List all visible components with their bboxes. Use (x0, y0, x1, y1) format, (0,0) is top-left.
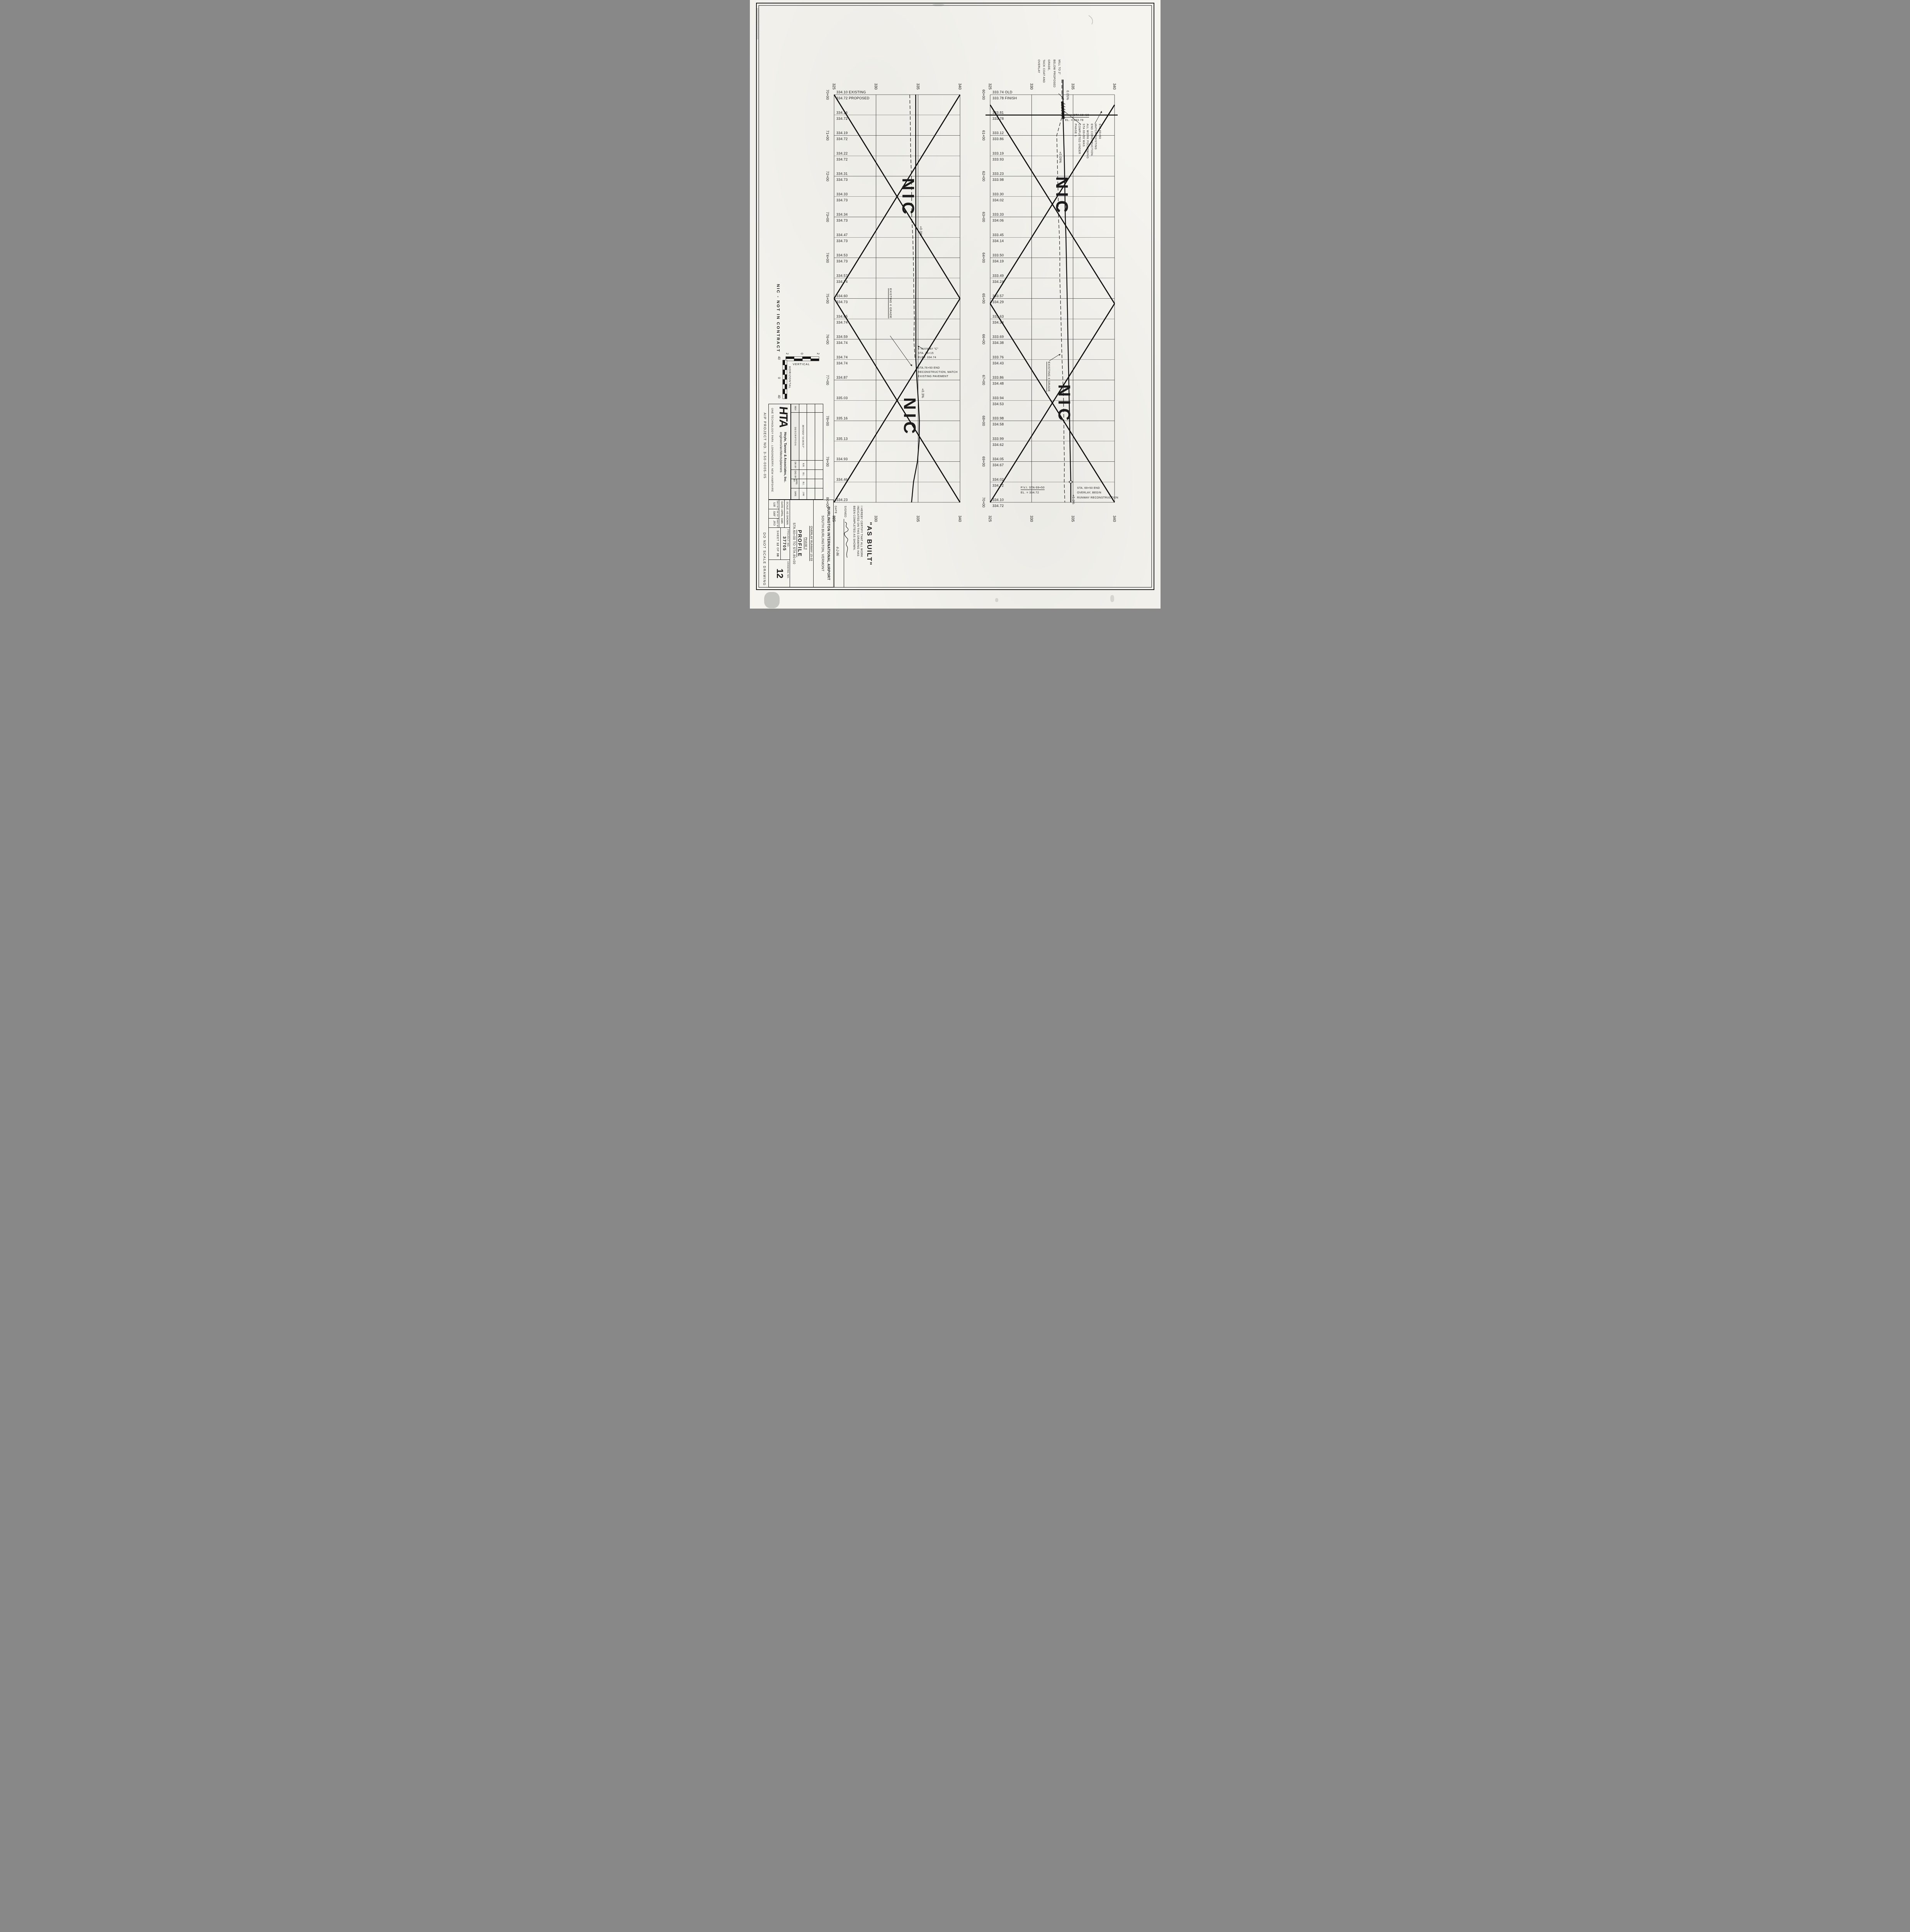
existing-elevation-value: 333.69 (992, 335, 1004, 339)
rev-header-dr-by: DR. BY (791, 461, 799, 470)
signature-date-label: DATE (834, 506, 836, 514)
station-label: 71+00 (825, 130, 829, 141)
firm-tagline: engineers/architects/planners (779, 432, 783, 473)
of-label: OF (776, 548, 779, 552)
existing-grade-leader-bottom (890, 336, 911, 366)
proposed-elevation-value: 333.93 (992, 157, 1004, 161)
elevation-axis-label-left: 335 (915, 83, 919, 90)
slope-label-005: 0.05% (1066, 90, 1069, 100)
proposed-elevation-value: 334.38 (992, 341, 1004, 345)
existing-elevation-value: 334.22 (836, 151, 848, 155)
proposed-elevation-value: 333.98 (992, 178, 1004, 182)
rev-description: REVISED "AS BUILT" (799, 413, 807, 461)
elevation-axis-label-left: 335 (1071, 83, 1075, 90)
existing-elevation-value: 333.94 (992, 396, 1004, 400)
pvi-60-50-note: P.V.I. STA 60+50 EL. = 333.78 (1065, 113, 1089, 123)
station-label: 76+00 (825, 334, 829, 345)
existing-elevation-value: 334.05 (992, 457, 1004, 461)
proposed-elevation-value: 334.72 (836, 137, 848, 141)
program-line: OVERLAY RUNWAY 15-33 (808, 500, 813, 587)
firm-address: ONE TECHNOLOGY PARK - LONDONDERRY, NEW H… (771, 408, 773, 492)
station-label: 75+00 (825, 293, 829, 304)
elevation-axis-label-right: 340 (1112, 515, 1116, 522)
sheet-title: PROFILE (797, 500, 803, 587)
signed-row: SIGNED (843, 500, 849, 587)
station-label: 72+00 (825, 171, 829, 182)
station-label: 78+00 (825, 416, 829, 426)
existing-elevation-value: 334.02 (992, 478, 1004, 481)
rev-header-appd-by: APPD. BY (791, 479, 799, 488)
existing-elevation-value: 333.86 (992, 376, 1004, 379)
proposed-elevation-value: 334.06 (992, 219, 1004, 223)
vertical-scale-bar-cell (794, 357, 802, 359)
elevation-axis-label-right: 335 (1071, 515, 1075, 522)
vertical-scale-bar-cell (811, 359, 819, 361)
existing-grade-line (909, 95, 915, 360)
existing-elevation-value: 333.49 (992, 274, 1004, 277)
hscale-tick-left: 40 (777, 356, 781, 360)
dr-by-cell: DR. BY SMF (768, 509, 779, 519)
existing-elevation-value: 334.59 (836, 335, 848, 339)
revision-table: REVISED "AS BUILT" R.B. B.L. B.L. 2/86 R… (791, 404, 823, 500)
proposed-elevation-value: 333.86 (992, 137, 1004, 141)
existing-elevation-value: 333.99 (992, 437, 1004, 440)
drawing-no-cell: DRAWING NO. 12 (768, 560, 790, 587)
proposed-elevation-value: 334.67 (992, 463, 1004, 467)
station-label: 74+00 (825, 253, 829, 263)
rev-header-rev: REV (791, 404, 799, 413)
elevation-axis-label-left: 340 (957, 83, 962, 90)
scale-value: AS SHOWN (786, 511, 788, 525)
slope-label-00-bottom: +0.0% (919, 226, 923, 236)
station-label: 64+00 (981, 253, 986, 263)
vertical-scale-bar-cell (802, 359, 811, 361)
pvi-69-50-line2: EL. = 334.72 (1021, 491, 1039, 494)
proposed-elevation-value: 334.24 (992, 280, 1004, 284)
existing-elevation-value: 334.34 (836, 213, 848, 216)
existing-elevation-value: 334.31 (836, 172, 848, 176)
existing-elevation-value: 334.93 (836, 457, 848, 461)
end-overlay-note: STA. 69+50 END OVERLAY, BEGIN RUNWAY REC… (1077, 486, 1118, 500)
existing-elevation-value: 333.19 (992, 151, 1004, 155)
existing-elevation-value: 333.12 (992, 131, 1004, 135)
proposed-elevation-value: 334.58 (992, 422, 1004, 426)
scanned-profile-sheet: 32532533033033533534034060+00333.74 OLD3… (750, 0, 1161, 609)
rev-appd-by: B.L. (799, 479, 807, 488)
rev-header-description: DESCRIPTION (791, 413, 799, 461)
pvi-69-50-line1: P.V.I. STA 69+50 (1021, 486, 1045, 490)
vscale-tick-top: 2 (816, 353, 820, 354)
signature-script (843, 520, 849, 563)
proposed-elevation-value: 334.02 (992, 198, 1004, 202)
by-cells: DES. BY SJR DR. BY SMF CHKD. BY JPD (768, 500, 779, 527)
scale-label: SCALE: (786, 502, 788, 510)
station-label: 77+00 (825, 375, 829, 385)
aip-project-number: AIP PROJECT NO. 3-50-0005-05 (763, 413, 767, 479)
firm-name: Hoyle, Tanner & Associates, Inc. (783, 432, 787, 482)
existing-grade-label-bottom: EXISTING ¢ GRADE (888, 288, 892, 318)
vertical-scale-bar-cell (802, 357, 811, 359)
proposed-elevation-value: 334.72 (836, 117, 848, 121)
proposed-elevation-value: 334.62 (992, 443, 1004, 447)
revision-header-row: REV DESCRIPTION DR. BY CKD. BY APPD. BY … (791, 404, 799, 499)
proposed-elevation-value: 334.72 (992, 504, 1004, 508)
existing-elevation-value: 334.47 (836, 233, 848, 237)
existing-elevation-value: 333.30 (992, 192, 1004, 196)
project-no-value: 37705 (782, 528, 787, 560)
existing-elevation-value: 334.19 (836, 131, 848, 135)
as-built-block: "AS BUILT" I HEREBY CERTIFY THAT ALL WOR… (834, 500, 873, 587)
horizontal-scale-bar-cell (783, 375, 785, 380)
phase-text: PHASE II (804, 537, 808, 550)
station-label: 61+00 (981, 130, 986, 141)
existing-elevation-value: 333.23 (992, 172, 1004, 176)
existing-elevation-value: 334.87 (836, 376, 848, 379)
project-no-label: PROJECT NO. (787, 528, 790, 560)
rev-header-ckd-by: CKD. BY (791, 470, 799, 479)
horizontal-scale-label: HORIZONTAL (788, 366, 792, 389)
station-label: 73+00 (825, 212, 829, 222)
match-existing-note: STA 60+50 MATCH EXISTING END CONSTRUCTIO… (1073, 124, 1101, 159)
proposed-elevation-value: 334.29 (992, 300, 1004, 304)
as-built-certificate: I HEREBY CERTIFY THAT ALL WORK INDICATED… (852, 500, 863, 587)
existing-elevation-value: 333.45 (992, 233, 1004, 237)
nic-watermark-1: NIC (1052, 177, 1071, 216)
proposed-elevation-value: 334.73 (836, 259, 848, 263)
drawing-landscape-content: 32532533033033533534034060+00333.74 OLD3… (750, 0, 1161, 609)
signature-date-line: 4-2-86 (834, 515, 841, 587)
rev-no (799, 404, 807, 413)
scan-pencil-mark (1089, 15, 1093, 24)
vscale-tick-mid: 0 (800, 353, 804, 354)
proposed-elevation-value: 334.53 (992, 402, 1004, 406)
existing-elevation-value: 333.50 (992, 253, 1004, 257)
existing-elevation-value: 335.03 (836, 396, 848, 400)
vertical-scale-bar-cell (811, 357, 819, 359)
existing-elevation-value: 334.60 (836, 294, 848, 298)
mill-overlay-note: MILL TO 2" BELOW PROPOSED GRADE, TACK CO… (1036, 60, 1061, 88)
proposed-elevation-value: 334.43 (992, 361, 1004, 365)
sheet-title-section: PROFILE STA.60+00 TO STA.80+00 (790, 500, 803, 587)
station-label: 68+00 (981, 416, 986, 426)
drawing-no-value: 12 (775, 560, 785, 587)
slope-label-00-top: +0.0% (1072, 495, 1075, 504)
pvi-60-50-line2: EL. = 333.78 (1065, 118, 1084, 122)
nic-watermark-2: NIC (1054, 384, 1074, 424)
station-label: 79+00 (825, 456, 829, 467)
horizontal-scale-bar-cell (783, 365, 785, 370)
sheet-label: SHEET (776, 531, 779, 541)
existing-elevation-value: 334.33 (836, 192, 848, 196)
end-reconstruction-note: STA.76+50 END RECONSTRUCTION, MATCH EXIS… (918, 366, 958, 379)
existing-elevation-value: 333.74 OLD (992, 90, 1013, 94)
title-airport-section: BURLINGTON INTERNATIONAL AIRPORT SOUTH B… (813, 500, 833, 587)
station-label: 66+00 (981, 334, 986, 345)
proposed-elevation-value: 334.48 (992, 382, 1004, 386)
horizontal-scale-bar-cell (783, 360, 785, 365)
station-label: 63+00 (981, 212, 986, 222)
proposed-elevation-value: 334.73 (836, 219, 848, 223)
station-label: 67+00 (981, 375, 986, 385)
signed-label: SIGNED (843, 506, 846, 517)
scale-date-cell: SCALE: AS SHOWN DATE: APRIL, 1985 DES. B… (768, 500, 790, 528)
hscale-tick-right: 40 (777, 395, 781, 398)
existing-elevation-value: 334.74 (836, 355, 848, 359)
taxiway-c-note: ¢ TAXIWAY "C" STA. 76+15 ELEV. 334.74 (918, 347, 938, 360)
proposed-elevation-value: 334.72 (836, 157, 848, 161)
horizontal-scale-bar-cell (783, 389, 785, 394)
sheet-title-text: PROFILE (797, 530, 803, 557)
des-by-value: SJR (773, 500, 776, 509)
elevation-axis-label-right: 325 (987, 515, 992, 522)
station-label: 70+00 (981, 497, 986, 508)
date-label: DATE: (780, 502, 783, 509)
sheet-of-row: SHEET 12 OF 38 (776, 528, 781, 560)
existing-grade-leader-top (1049, 354, 1060, 361)
revision-row-empty (807, 404, 815, 499)
proposed-elevation-value: 334.73 (836, 239, 848, 243)
title-lower-band: SCALE: AS SHOWN DATE: APRIL, 1985 DES. B… (768, 500, 790, 587)
revision-row-as-built: REVISED "AS BUILT" R.B. B.L. B.L. 2/86 (799, 404, 807, 499)
scan-smudge (995, 598, 998, 602)
station-label: 69+00 (981, 456, 986, 467)
slope-label-009: +0.09% (1059, 151, 1062, 163)
do-not-scale-note: DO NOT SCALE DRAWING (763, 532, 766, 586)
scan-smudge (1110, 595, 1114, 602)
signature-line (843, 519, 849, 587)
chkd-by-value: JPD (773, 519, 776, 527)
existing-elevation-value: 334.57 (836, 274, 848, 277)
proposed-elevation-value: 334.74 (836, 361, 848, 365)
program-text: OVERLAY RUNWAY 15-33 (809, 526, 813, 561)
existing-elevation-value: 333.76 (992, 355, 1004, 359)
pvi-60-50-line1: P.V.I. STA 60+50 (1065, 113, 1089, 117)
proposed-elevation-value: 334.19 (992, 259, 1004, 263)
elevation-axis-label-right: 330 (1029, 515, 1033, 522)
proposed-elevation-value: 333.78 FINISH (992, 96, 1017, 100)
existing-elevation-value: 333.33 (992, 213, 1004, 216)
revision-row-empty (815, 404, 823, 499)
profile-grid-sta70-80: 32532533033033533534034070+00334.10 EXIS… (825, 83, 962, 522)
proposed-elevation-value: 334.74 (836, 341, 848, 345)
project-no-cell: PROJECT NO. 37705 SHEET 12 OF 38 (768, 528, 790, 560)
scan-smudge (764, 592, 780, 608)
signature-date-value: 4-2-86 (835, 547, 839, 556)
elevation-axis-label-left: 330 (1029, 83, 1033, 90)
existing-grade-label-top: EXISTING ¢ GRADE (1047, 362, 1051, 392)
station-label: 62+00 (981, 171, 986, 182)
elevation-axis-label-left: 325 (831, 83, 836, 90)
airport-city: SOUTH BURLINGTON, VERMONT (821, 500, 825, 587)
edge-print-artifact (757, 9, 759, 39)
nic-legend: NIC - NOT IN CONTRACT (776, 284, 780, 352)
date-row: DATE 4-2-86 (834, 500, 841, 587)
vscale-tick-bottom: 2 (785, 353, 789, 354)
existing-grade-arrowhead-bottom (910, 364, 912, 367)
rev-date: 2/86 (799, 488, 807, 499)
phase-line: PHASE II (803, 500, 808, 587)
nic-watermark-4: NIC (900, 398, 919, 437)
scan-smudge (933, 4, 944, 6)
sheet-total: 38 (776, 553, 779, 557)
elevation-axis-label-right: 335 (915, 515, 919, 522)
station-label: 60+00 (981, 90, 986, 100)
dr-by-value: SMF (773, 509, 776, 518)
elevation-axis-label-left: 325 (987, 83, 992, 90)
scale-row: SCALE: AS SHOWN (784, 500, 790, 527)
drawing-no-label: DRAWING NO. (787, 560, 790, 587)
rev-header-date: DATE (791, 488, 799, 499)
rev-ckd-by: B.L. (799, 470, 807, 479)
proposed-elevation-value: 334.73 (836, 178, 848, 182)
airport-name: BURLINGTON INTERNATIONAL AIRPORT (827, 500, 831, 587)
sheet-no: 12 (776, 543, 779, 546)
vertical-scale-bar-cell (794, 359, 802, 361)
existing-elevation-value: 335.16 (836, 417, 848, 420)
station-label: 65+00 (981, 293, 986, 304)
slope-label-03: +0.3% (921, 388, 924, 398)
sheet-subtitle: STA.60+00 TO STA.80+00 (792, 500, 796, 587)
horizontal-scale-bar-cell (783, 394, 785, 399)
chkd-by-label: CHKD. BY (776, 519, 779, 527)
existing-elevation-value: 334.10 (992, 498, 1004, 502)
existing-elevation-value: 333.98 (992, 417, 1004, 420)
proposed-elevation-value: 334.73 (836, 198, 848, 202)
existing-elevation-value: 334.53 (836, 253, 848, 257)
existing-elevation-value: 334.10 EXISTING (836, 90, 866, 94)
chkd-by-cell: CHKD. BY JPD (768, 519, 779, 527)
horizontal-scale-bar-cell (783, 370, 785, 375)
elevation-axis-label-left: 330 (873, 83, 878, 90)
elevation-axis-label-right: 340 (957, 515, 962, 522)
vertical-scale-label: VERTICAL (793, 362, 810, 366)
vertical-scale-bar-cell (786, 357, 794, 359)
existing-elevation-value: 335.13 (836, 437, 848, 440)
date-value: APRIL, 1985 (780, 509, 783, 524)
elevation-axis-label-left: 340 (1112, 83, 1116, 90)
as-built-heading: "AS BUILT" (865, 500, 873, 587)
elevation-axis-label-right: 330 (873, 515, 878, 522)
date-row-tb: DATE: APRIL, 1985 (779, 500, 784, 527)
title-block: BURLINGTON INTERNATIONAL AIRPORT SOUTH B… (768, 500, 834, 587)
proposed-elevation-value: 334.72 PROPOSED (836, 96, 870, 100)
match-note-leader-1 (1095, 112, 1101, 124)
horizontal-scale-bar-cell (783, 384, 785, 389)
des-by-cell: DES. BY SJR (768, 500, 779, 509)
firm-logo: HTA (777, 406, 790, 428)
des-by-label: DES. BY (776, 500, 779, 509)
proposed-elevation-value: 334.74 (836, 320, 848, 324)
pvi-marker (1069, 481, 1072, 483)
nic-watermark-3: NIC (898, 178, 918, 218)
firm-block: HTA Hoyle, Tanner & Associates, Inc. eng… (768, 404, 791, 500)
hscale-tick-mid: 0 (777, 377, 781, 379)
horizontal-scale-bar-cell (783, 379, 785, 384)
station-label: 70+00 (825, 90, 829, 100)
pvi-69-50-note: P.V.I. STA 69+50 EL. = 334.72 (1021, 485, 1045, 495)
proposed-elevation-value: 334.14 (992, 239, 1004, 243)
proposed-elevation-value: 334.73 (836, 300, 848, 304)
existing-elevation-value: 334.46 (836, 478, 848, 481)
dr-by-label: DR. BY (776, 509, 779, 518)
rev-dr-by: R.B. (799, 461, 807, 470)
